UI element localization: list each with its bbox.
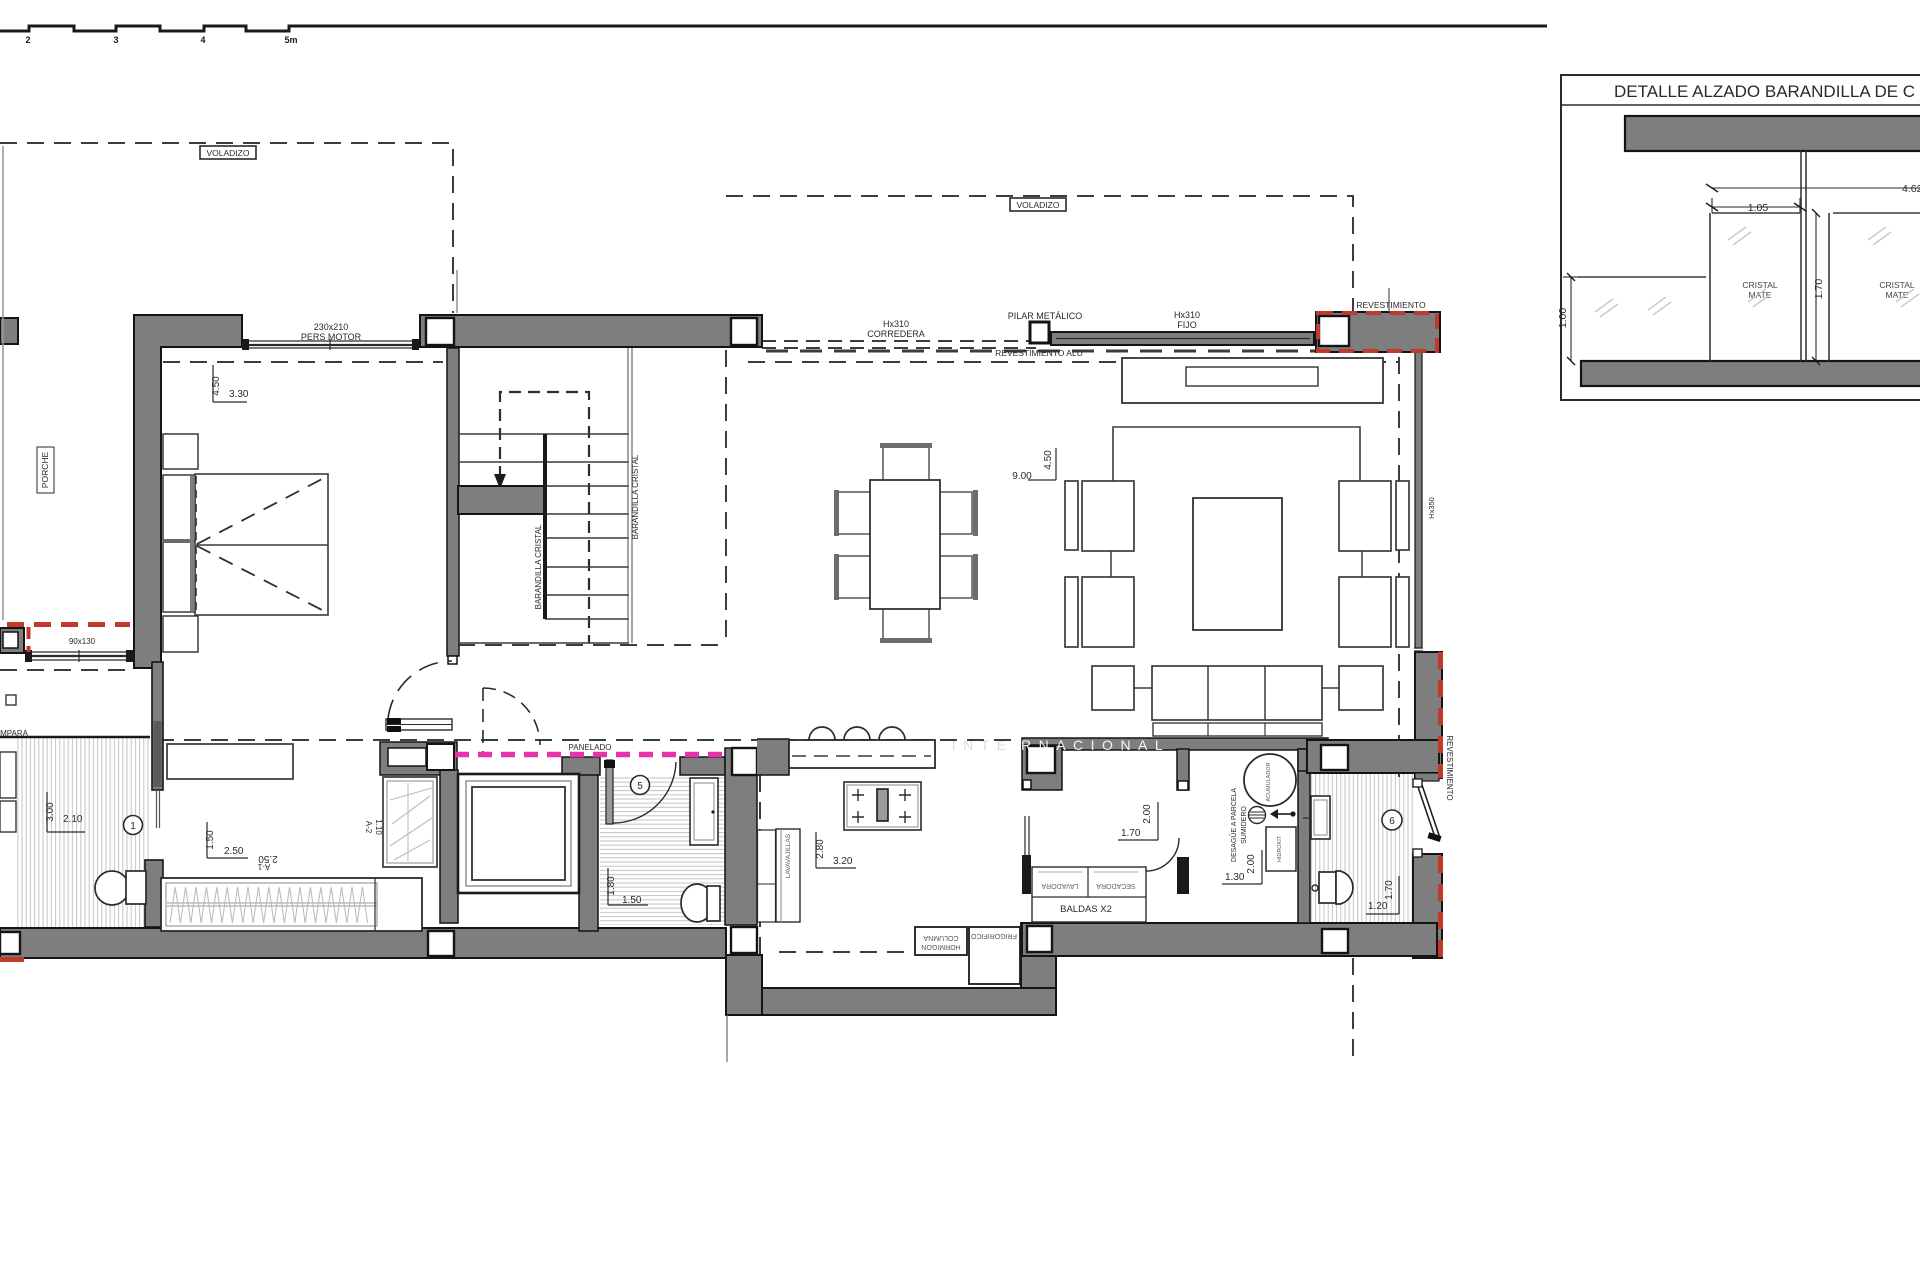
- svg-text:FRIGORIFICO: FRIGORIFICO: [971, 932, 1017, 939]
- svg-text:PERS MOTOR: PERS MOTOR: [301, 332, 362, 342]
- svg-text:1.70: 1.70: [1813, 279, 1825, 300]
- svg-text:LAVAVAJILLAS: LAVAVAJILLAS: [785, 833, 792, 878]
- svg-text:PANELADO: PANELADO: [569, 743, 612, 752]
- svg-text:1.80: 1.80: [606, 876, 617, 896]
- svg-text:1.50: 1.50: [622, 895, 642, 906]
- svg-text:PILAR METÁLICO: PILAR METÁLICO: [1008, 311, 1083, 321]
- svg-text:3.00: 3.00: [45, 802, 56, 822]
- svg-text:1.20: 1.20: [1368, 901, 1388, 912]
- svg-text:ACUMULADOR: ACUMULADOR: [1266, 762, 1272, 801]
- svg-text:230x210: 230x210: [314, 322, 349, 332]
- svg-text:A-1: A-1: [257, 862, 270, 871]
- svg-text:Hx310: Hx310: [883, 319, 909, 329]
- svg-text:DESAGÜE A PARCELA: DESAGÜE A PARCELA: [1230, 788, 1238, 863]
- svg-text:1: 1: [130, 821, 136, 832]
- svg-text:REVESTIMIENTO ALU: REVESTIMIENTO ALU: [995, 348, 1083, 358]
- svg-text:1.05: 1.05: [1748, 202, 1769, 214]
- svg-text:5m: 5m: [284, 35, 297, 45]
- svg-text:1.30: 1.30: [1225, 872, 1245, 883]
- svg-text:CORREDERA: CORREDERA: [867, 329, 925, 339]
- svg-text:1.50: 1.50: [205, 830, 216, 850]
- svg-text:1.70: 1.70: [1384, 880, 1395, 900]
- svg-text:CRISTAL: CRISTAL: [1879, 280, 1915, 290]
- svg-text:2.50: 2.50: [224, 846, 244, 857]
- svg-text:BARANDILLA CRISTAL: BARANDILLA CRISTAL: [631, 454, 640, 539]
- svg-text:2: 2: [25, 35, 30, 45]
- svg-text:RNACIONAL: RNACIONAL: [1021, 737, 1170, 753]
- svg-text:A-2: A-2: [364, 821, 373, 834]
- svg-text:PORCHE: PORCHE: [40, 451, 50, 488]
- svg-text:DETALLE ALZADO BARANDILLA DE C: DETALLE ALZADO BARANDILLA DE C: [1614, 82, 1915, 101]
- svg-text:2.10: 2.10: [63, 814, 83, 825]
- svg-text:Hx310: Hx310: [1174, 310, 1200, 320]
- svg-text:REVESTIMIENTO: REVESTIMIENTO: [1445, 735, 1454, 800]
- svg-text:2.80: 2.80: [815, 839, 826, 859]
- svg-text:SUMIDERO: SUMIDERO: [1241, 806, 1248, 844]
- svg-text:HIDROKIT: HIDROKIT: [1277, 835, 1283, 862]
- svg-text:LAVADORA: LAVADORA: [1041, 882, 1078, 889]
- svg-text:BARANDILLA CRISTAL: BARANDILLA CRISTAL: [534, 524, 543, 609]
- svg-text:COLUMNA: COLUMNA: [923, 934, 958, 941]
- svg-text:3: 3: [113, 35, 118, 45]
- svg-text:BALDAS X2: BALDAS X2: [1060, 904, 1112, 915]
- svg-text:MAMPARA: MAMPARA: [0, 729, 29, 738]
- svg-text:6: 6: [1389, 816, 1395, 827]
- svg-text:1.70: 1.70: [1121, 828, 1141, 839]
- svg-text:Hx350: Hx350: [1427, 497, 1436, 519]
- svg-text:4.50: 4.50: [1043, 450, 1054, 470]
- svg-text:90x130: 90x130: [69, 637, 96, 646]
- svg-text:4: 4: [200, 35, 205, 45]
- svg-text:1.10: 1.10: [374, 819, 383, 835]
- svg-text:3.30: 3.30: [229, 389, 249, 400]
- svg-text:CRISTAL: CRISTAL: [1742, 280, 1778, 290]
- svg-text:3.20: 3.20: [833, 856, 853, 867]
- svg-text:REVESTIMIENTO: REVESTIMIENTO: [1356, 300, 1426, 310]
- svg-text:HORMIGON: HORMIGON: [921, 943, 960, 950]
- svg-text:VOLADIZO: VOLADIZO: [207, 148, 250, 158]
- svg-text:2.00: 2.00: [1142, 804, 1153, 824]
- svg-text:2.00: 2.00: [1246, 854, 1257, 874]
- svg-text:9.00: 9.00: [1012, 471, 1032, 482]
- svg-text:4.50: 4.50: [211, 376, 222, 396]
- svg-text:1.00: 1.00: [1557, 308, 1569, 329]
- svg-text:4.62: 4.62: [1902, 183, 1920, 195]
- svg-text:VOLADIZO: VOLADIZO: [1017, 200, 1060, 210]
- svg-text:5: 5: [637, 781, 643, 792]
- svg-text:SECADORA: SECADORA: [1096, 882, 1136, 889]
- svg-text:FIJO: FIJO: [1177, 320, 1197, 330]
